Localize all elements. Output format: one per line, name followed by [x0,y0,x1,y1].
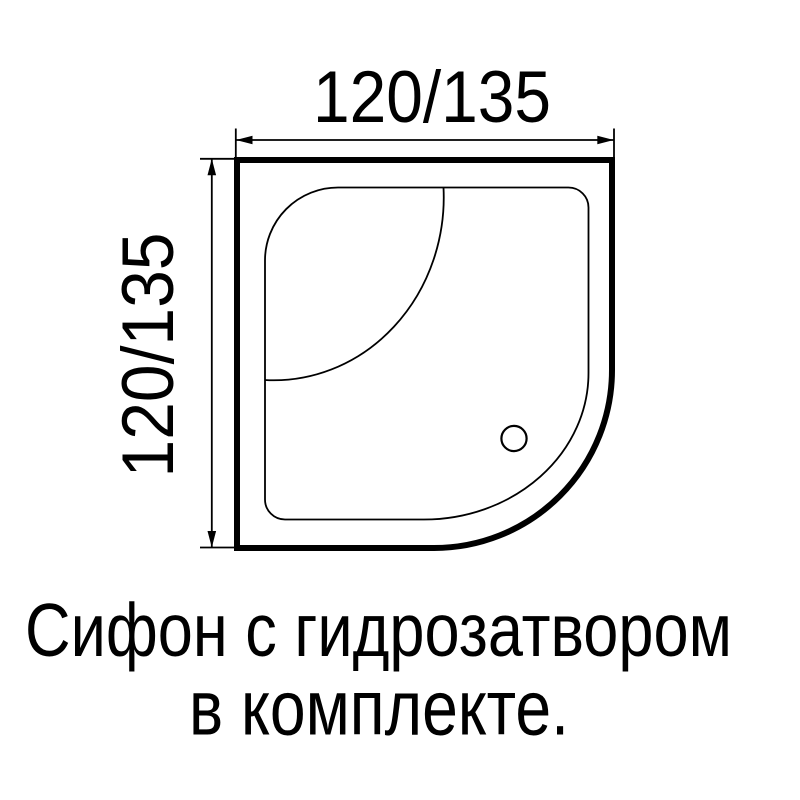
svg-text:в комплекте.: в комплекте. [189,664,569,752]
svg-text:Сифон с гидрозатвором: Сифон с гидрозатвором [25,588,732,672]
svg-text:120/135: 120/135 [106,233,189,478]
svg-text:120/135: 120/135 [313,55,551,138]
